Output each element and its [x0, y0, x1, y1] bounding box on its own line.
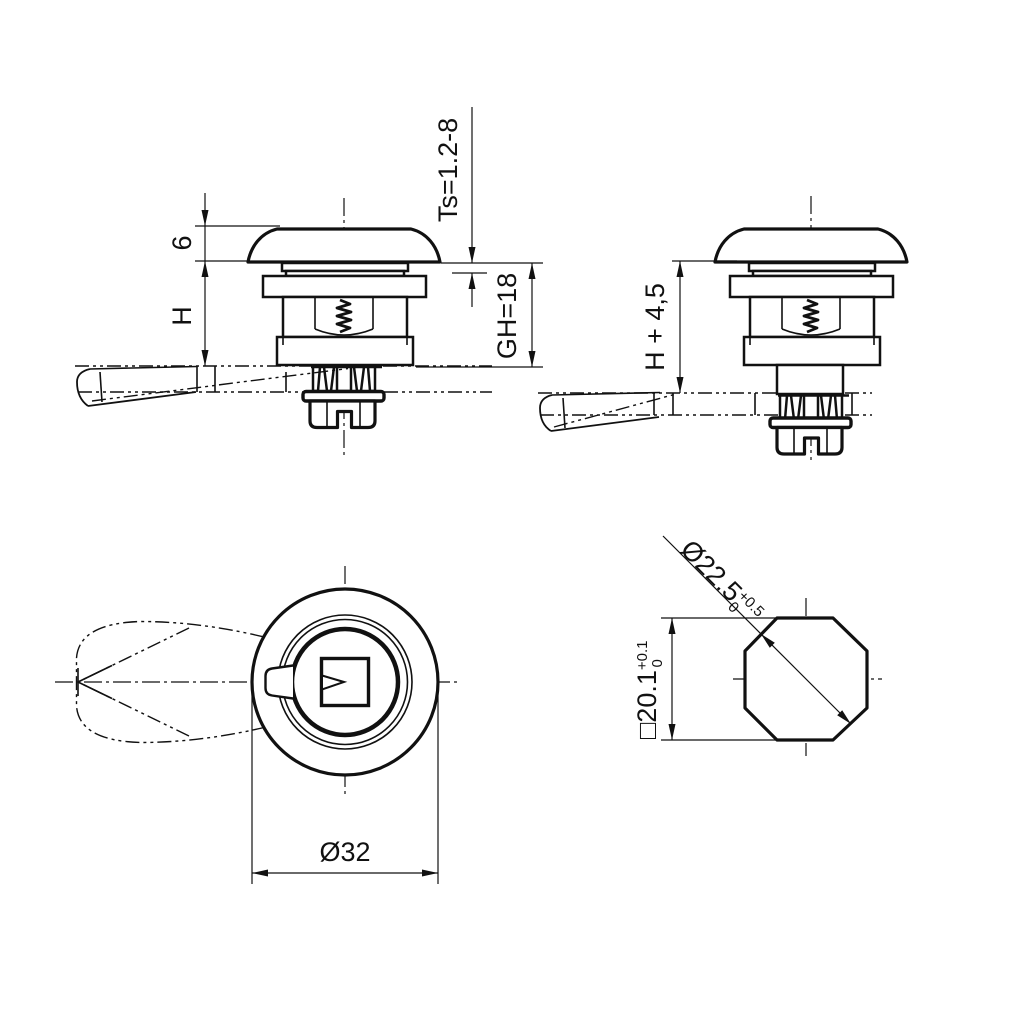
side-view-extended: H + 4,5 — [538, 196, 907, 460]
latch-cam-foot — [770, 418, 851, 454]
dim-cutout-diameter-label: Ø22.5+0.50 — [672, 534, 769, 631]
technical-drawing-page: 6 H Ts=1.2-8 GH=18 — [0, 0, 1024, 1024]
dim-panel-thickness-label: Ts=1.2-8 — [433, 118, 463, 222]
latch-teeth — [311, 367, 382, 391]
dim-outer-diameter-label: Ø32 — [319, 837, 370, 867]
dim-cap-height-label: 6 — [167, 235, 197, 250]
dim-panel-thickness: Ts=1.2-8 — [433, 107, 543, 307]
dim-height-plus-label: H + 4,5 — [640, 283, 670, 371]
dim-cutout-square-label: □20.1+0.10 — [632, 641, 666, 739]
latch-cam-foot — [303, 392, 384, 428]
plan-view: Ø32 — [55, 566, 458, 884]
latch-teeth — [778, 396, 849, 420]
panel-phantom — [75, 366, 492, 392]
dim-height-plus: H + 4,5 — [640, 261, 737, 393]
index-tab — [266, 666, 294, 699]
handle-side-phantom — [540, 393, 676, 432]
latch-body-upper — [248, 229, 440, 365]
latch-body-upper — [715, 229, 907, 365]
side-view-closed: 6 H Ts=1.2-8 GH=18 — [75, 107, 543, 455]
cutout-view: Ø22.5+0.50 □20.1+0.10 — [632, 534, 882, 756]
dim-grip-height: GH=18 — [416, 263, 543, 367]
latch-technical-drawing: 6 H Ts=1.2-8 GH=18 — [0, 0, 1024, 1024]
dim-grip-height-label: GH=18 — [492, 273, 522, 359]
latch-neck-extension — [777, 365, 843, 394]
dim-height-label: H — [167, 306, 197, 326]
